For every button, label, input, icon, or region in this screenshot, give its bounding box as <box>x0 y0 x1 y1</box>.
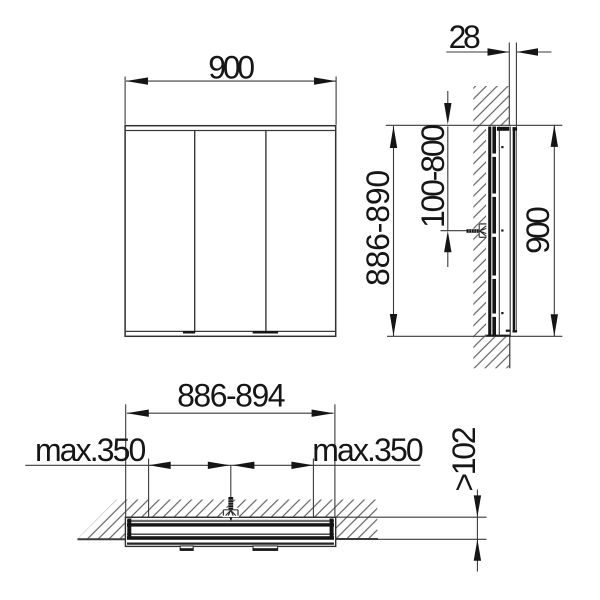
svg-text:28: 28 <box>449 19 480 55</box>
svg-text:900: 900 <box>208 49 254 85</box>
svg-text:>102: >102 <box>446 427 482 491</box>
svg-text:900: 900 <box>520 207 556 254</box>
svg-text:max.350: max.350 <box>35 432 146 468</box>
svg-text:100-800: 100-800 <box>415 125 451 228</box>
svg-text:886-890: 886-890 <box>360 170 396 286</box>
svg-text:886-894: 886-894 <box>177 378 285 414</box>
svg-text:max.350: max.350 <box>312 432 423 468</box>
